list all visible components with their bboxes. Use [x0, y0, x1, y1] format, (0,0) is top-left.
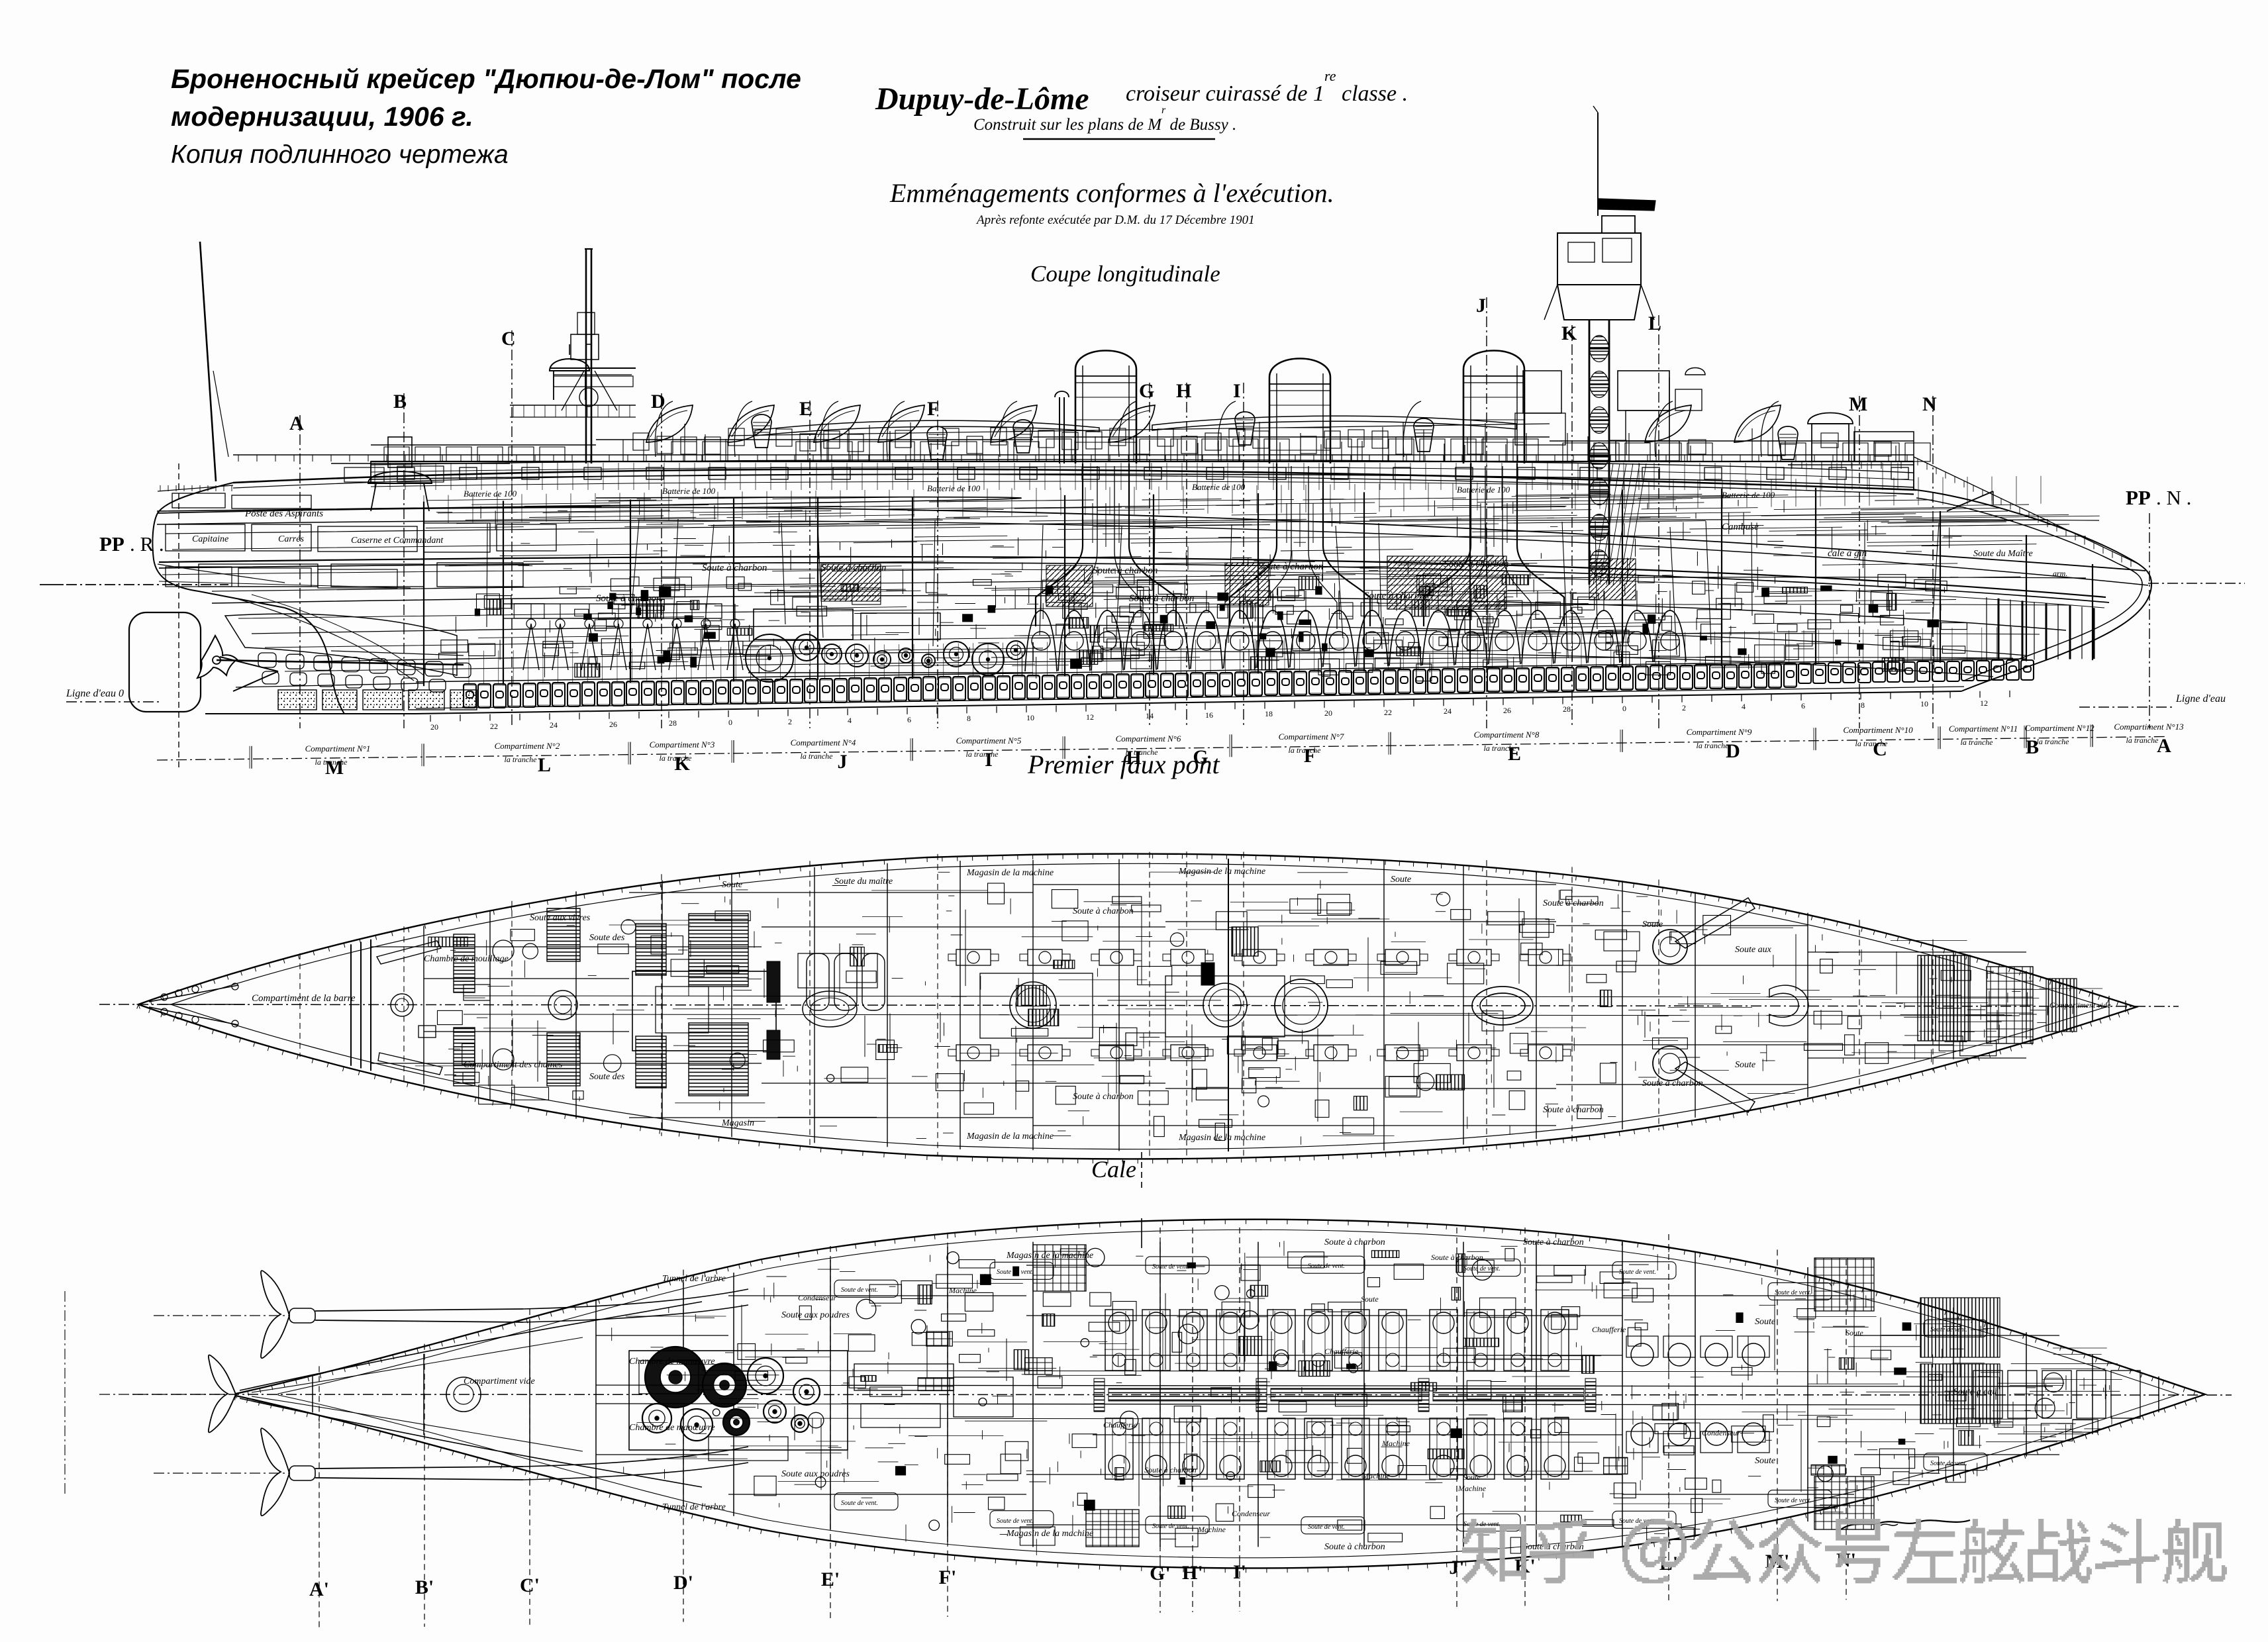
svg-text:H: H: [1176, 380, 1191, 402]
svg-text:18: 18: [1265, 709, 1273, 718]
svg-text:Soute: Soute: [1755, 1317, 1775, 1327]
svg-text:Soute de vent.: Soute de vent.: [1463, 1265, 1501, 1273]
svg-text:Compartiment N°11: Compartiment N°11: [1949, 724, 2018, 734]
svg-text:Soute de vent.: Soute de vent.: [1308, 1523, 1345, 1531]
svg-text:Chambre de mouillage: Chambre de mouillage: [424, 954, 509, 964]
svg-text:Batterie de 100: Batterie de 100: [1192, 482, 1246, 492]
svg-text:Compartiment N°3: Compartiment N°3: [650, 740, 715, 749]
svg-text:Soute de vent.: Soute de vent.: [1152, 1523, 1189, 1530]
svg-text:N: N: [1922, 393, 1937, 415]
svg-text:Condenseur: Condenseur: [798, 1293, 836, 1302]
svg-text:Soute de vent.: Soute de vent.: [997, 1518, 1034, 1525]
svg-text:D': D': [673, 1572, 693, 1594]
svg-text:26: 26: [609, 720, 617, 729]
svg-text:Soute aux: Soute aux: [1735, 945, 1772, 955]
svg-text:24: 24: [550, 720, 558, 730]
svg-text:Soute de vent.: Soute de vent.: [841, 1286, 878, 1294]
svg-text:Броненосный крейсер "Дюпюи-де-: Броненосный крейсер "Дюпюи-де-Лом" после: [171, 64, 801, 94]
svg-text:Soute de vent.: Soute de vent.: [1463, 1521, 1501, 1528]
svg-text:Compartiment vide: Compartiment vide: [2049, 1000, 2111, 1010]
svg-text:Soute aux poudres: Soute aux poudres: [781, 1469, 850, 1479]
svg-text:Chaufferie: Chaufferie: [1324, 1347, 1359, 1356]
svg-text:Soute aux poudres: Soute aux poudres: [781, 1310, 850, 1320]
svg-text:Condenseur: Condenseur: [1702, 1428, 1740, 1437]
svg-text:Soute à charbon: Soute à charbon: [1073, 1092, 1134, 1102]
svg-text:L: L: [1648, 313, 1661, 334]
svg-text:Cale: Cale: [1091, 1156, 1136, 1183]
svg-text:Soute de vent.: Soute de vent.: [1619, 1269, 1656, 1276]
svg-text:Magasin de la machine: Magasin de la machine: [966, 868, 1054, 878]
svg-text:Magasin de la machine: Magasin de la machine: [1178, 1133, 1265, 1143]
svg-text:Soute à charbon: Soute à charbon: [1324, 1542, 1385, 1552]
svg-text:Soute à charbon: Soute à charbon: [1073, 906, 1134, 916]
svg-text:Soute à charbon: Soute à charbon: [1543, 1105, 1604, 1115]
svg-text:B': B': [415, 1576, 434, 1598]
svg-text:Machine: Machine: [1457, 1484, 1487, 1493]
svg-text:Soute: Soute: [1391, 875, 1411, 885]
svg-text:Soute des: Soute des: [589, 933, 625, 943]
svg-text:Soute: Soute: [1463, 1473, 1481, 1482]
svg-text:L: L: [538, 754, 551, 776]
svg-text:Soute de vent.: Soute de vent.: [841, 1500, 878, 1507]
svg-text:Compartiment de la barre: Compartiment de la barre: [252, 993, 356, 1004]
svg-text:Chaufferie: Chaufferie: [1592, 1325, 1626, 1334]
svg-text:la tranche: la tranche: [660, 753, 693, 763]
svg-text:6: 6: [907, 715, 911, 724]
svg-text:Compartiment des chaînes: Compartiment des chaînes: [464, 1060, 563, 1070]
svg-text:J: J: [838, 751, 848, 773]
svg-text:Soute à charbon: Soute à charbon: [1431, 1253, 1483, 1262]
svg-text:Compartiment N°13: Compartiment N°13: [2114, 722, 2184, 732]
svg-text:Batterie de 100: Batterie de 100: [1457, 485, 1510, 495]
svg-text:arm.: arm.: [2053, 569, 2067, 578]
svg-text:Premier faux pont: Premier faux pont: [1027, 749, 1220, 779]
svg-text:Magasin de la machine: Magasin de la machine: [1178, 867, 1265, 877]
svg-text:Soute: Soute: [1735, 1060, 1755, 1070]
svg-text:Ligne d'eau 0: Ligne d'eau 0: [66, 688, 124, 699]
svg-text:Compartiment N°2: Compartiment N°2: [495, 741, 560, 751]
svg-text:Soute de vent.: Soute de vent.: [1930, 1326, 1967, 1333]
svg-text:10: 10: [1026, 713, 1034, 722]
svg-text:Soute à charbon: Soute à charbon: [1144, 1465, 1197, 1474]
svg-text:E': E': [821, 1569, 840, 1590]
svg-text:M: M: [1849, 393, 1867, 415]
svg-text:Soute de vent.: Soute de vent.: [1930, 1460, 1967, 1467]
svg-text:8: 8: [1861, 700, 1865, 710]
svg-text:A': A': [309, 1578, 329, 1600]
svg-text:0: 0: [728, 718, 732, 727]
svg-text:Après refonte exécutée par D.M: Après refonte exécutée par D.M. du 17 Dé…: [975, 213, 1255, 227]
svg-text:. R .: . R .: [130, 532, 164, 555]
svg-text:Soute de vent.: Soute de vent.: [1775, 1497, 1812, 1504]
svg-text:Compartiment vide: Compartiment vide: [464, 1376, 535, 1386]
svg-text:PP: PP: [99, 532, 124, 555]
svg-text:I: I: [1233, 380, 1241, 402]
svg-text:Chaufferie: Chaufferie: [1103, 1420, 1138, 1429]
svg-text:C': C': [520, 1574, 540, 1596]
svg-text:Compartiment N°5: Compartiment N°5: [956, 736, 1022, 746]
svg-text:14: 14: [1146, 711, 1154, 720]
svg-text:2: 2: [788, 717, 792, 726]
svg-text:Compartiment N°6: Compartiment N°6: [1116, 734, 1181, 744]
svg-text:Soute de vent.: Soute de vent.: [1308, 1263, 1345, 1270]
svg-text:Soute à charbon: Soute à charbon: [1523, 1237, 1584, 1247]
svg-text:22: 22: [490, 722, 498, 731]
svg-text:28: 28: [669, 718, 677, 728]
svg-text:26: 26: [1503, 706, 1511, 715]
svg-text:8: 8: [967, 714, 971, 723]
svg-text:Emménagements conformes à l: Emménagements conformes à l'exécution.: [889, 178, 1334, 208]
svg-text:Capitaine: Capitaine: [192, 534, 228, 544]
svg-text:Machine: Machine: [1361, 1471, 1391, 1480]
svg-text:Soute de vent.: Soute de vent.: [1775, 1289, 1812, 1296]
svg-text:Tunnel de l'arbre: Tunnel de l'arbre: [662, 1274, 726, 1284]
svg-text:B: B: [393, 391, 407, 412]
svg-text:F': F': [939, 1567, 957, 1588]
svg-text:Compartiment N°12: Compartiment N°12: [2024, 723, 2095, 733]
svg-text:Soute du Maître: Soute du Maître: [1973, 549, 2033, 559]
svg-text:6: 6: [1801, 701, 1805, 710]
svg-text:C: C: [501, 328, 516, 350]
svg-text:E: E: [799, 398, 813, 420]
svg-text:Tunnel de l'arbre: Tunnel de l'arbre: [662, 1502, 726, 1512]
svg-text:Carrés: Carrés: [278, 534, 304, 544]
svg-text:Soute du maître: Soute du maître: [834, 877, 893, 887]
svg-text:K: K: [1561, 322, 1577, 344]
svg-text:4: 4: [1742, 702, 1746, 711]
svg-text:J: J: [1476, 295, 1486, 316]
svg-text:24: 24: [1444, 706, 1452, 716]
svg-text:Soute: Soute: [1361, 1294, 1379, 1304]
svg-text:Soute de vent.: Soute de vent.: [997, 1269, 1034, 1276]
svg-text:Caserne et Commandant: Caserne et Commandant: [351, 536, 444, 546]
svg-text:Soute: Soute: [1846, 1328, 1863, 1337]
svg-text:Копия подлинного чертежа: Копия подлинного чертежа: [171, 140, 509, 169]
svg-text:Compartiment N°7: Compartiment N°7: [1279, 732, 1344, 742]
svg-text:Batterie de 100: Batterie de 100: [464, 489, 517, 499]
svg-text:Compartiment N°1: Compartiment N°1: [305, 744, 371, 753]
svg-text:28: 28: [1563, 704, 1571, 714]
svg-text:Magasin de la machine: Magasin de la machine: [966, 1132, 1054, 1141]
svg-text:la tranche: la tranche: [315, 757, 348, 767]
svg-text:Compartiment N°10: Compartiment N°10: [1843, 725, 1913, 735]
svg-text:Ligne d'eau: Ligne d'eau: [2175, 693, 2226, 704]
svg-text:Soute des: Soute des: [589, 1072, 625, 1082]
svg-text:A: A: [2157, 735, 2171, 757]
svg-text:Soute à charbon: Soute à charbon: [702, 563, 767, 573]
svg-text:Dupuy-de-Lôme: Dupuy-de-Lôme: [875, 81, 1089, 117]
svg-text:Soute aux vivres: Soute aux vivres: [530, 913, 591, 923]
svg-text:Cambuse: Cambuse: [1722, 522, 1759, 532]
svg-text:. N .: . N .: [2156, 486, 2191, 509]
svg-text:2: 2: [1682, 703, 1686, 712]
svg-text:Machine: Machine: [948, 1286, 977, 1295]
svg-text:Batterie de 100: Batterie de 100: [662, 486, 716, 496]
svg-text:Soute à charbon: Soute à charbon: [1543, 898, 1604, 908]
svg-text:J': J': [1449, 1557, 1464, 1578]
svg-text:20: 20: [430, 722, 438, 732]
svg-text:Soute de vent.: Soute de vent.: [1152, 1263, 1189, 1271]
svg-text:Machine: Machine: [1197, 1525, 1226, 1534]
svg-text:16: 16: [1205, 710, 1213, 720]
svg-text:G: G: [1139, 380, 1154, 402]
svg-text:Compartiment N°9: Compartiment N°9: [1687, 727, 1752, 737]
svg-text:H': H': [1182, 1562, 1203, 1584]
svg-text:G': G': [1150, 1563, 1171, 1584]
svg-text:G: G: [1193, 746, 1208, 768]
svg-text:20: 20: [1324, 708, 1332, 718]
svg-text:Soute à charbon: Soute à charbon: [1324, 1237, 1385, 1247]
svg-text:Magasin de la machine: Magasin de la machine: [1006, 1251, 1093, 1261]
svg-text:Soute: Soute: [722, 880, 742, 890]
svg-text:PP: PP: [2126, 486, 2151, 509]
svg-text:22: 22: [1384, 708, 1392, 717]
svg-text:Condenseur: Condenseur: [1232, 1509, 1270, 1518]
svg-text:cale à gin: cale à gin: [1828, 548, 1867, 559]
svg-text:Compartiment N°4: Compartiment N°4: [791, 738, 856, 748]
svg-text:Magasin: Magasin: [721, 1118, 754, 1128]
svg-text:Batterie de 100: Batterie de 100: [927, 483, 981, 493]
svg-text:A: A: [289, 412, 304, 434]
svg-text:Chambre de manœuvre: Chambre de manœuvre: [629, 1357, 715, 1367]
svg-text:0: 0: [1622, 704, 1626, 713]
svg-text:12: 12: [1980, 699, 1988, 708]
svg-text:10: 10: [1920, 699, 1928, 708]
svg-text:Soute: Soute: [1755, 1456, 1775, 1466]
svg-text:4: 4: [848, 716, 852, 725]
svg-text:Chambre de manœuvre: Chambre de manœuvre: [629, 1423, 715, 1433]
svg-text:Compartiment N°8: Compartiment N°8: [1474, 730, 1540, 740]
svg-text:модернизации, 1906 г.: модернизации, 1906 г.: [171, 101, 473, 132]
svg-text:Batterie de 100: Batterie de 100: [1722, 490, 1775, 500]
svg-text:I': I': [1233, 1561, 1246, 1583]
svg-text:12: 12: [1086, 712, 1094, 722]
svg-text:Soute à charbon: Soute à charbon: [1642, 1079, 1703, 1088]
svg-text:Poste des Aspirants: Poste des Aspirants: [244, 508, 323, 519]
svg-text:Soute: Soute: [1642, 920, 1663, 930]
svg-text:Coupe longitudinale: Coupe longitudinale: [1030, 261, 1220, 287]
svg-text:Magasin de la machine: Magasin de la machine: [1006, 1529, 1093, 1539]
